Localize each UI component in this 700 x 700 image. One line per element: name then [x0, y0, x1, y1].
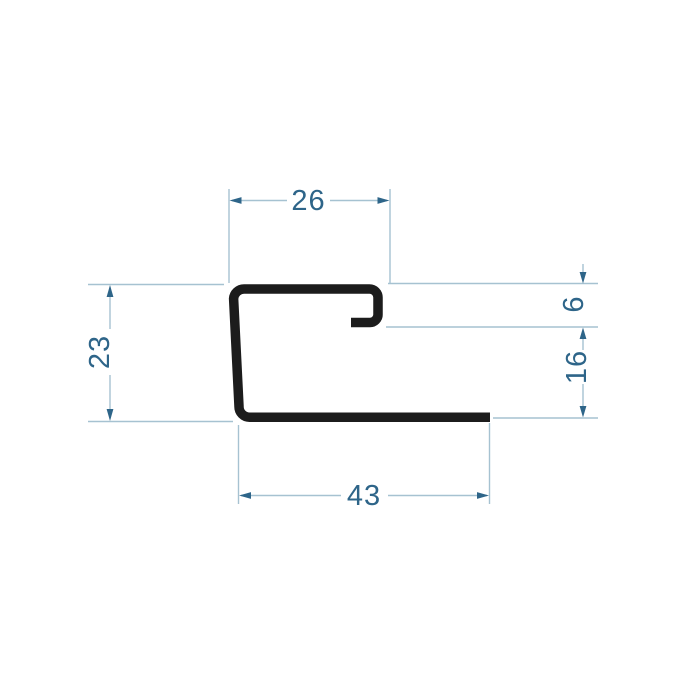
dim-right-lower-label: 16 [561, 350, 593, 384]
arrow-left-icon [230, 197, 242, 204]
dim-right-upper: 6 [386, 264, 598, 327]
arrow-right-icon [378, 197, 390, 204]
dim-bottom-width-label: 43 [347, 480, 381, 512]
arrow-down-icon [580, 272, 587, 284]
profile-cross-section-path [234, 289, 490, 417]
dim-left-height-label: 23 [84, 335, 116, 369]
dim-right-upper-label: 6 [558, 295, 590, 312]
arrow-right-icon [477, 492, 489, 499]
profile-drawing-svg: 26 23 6 16 [0, 0, 700, 700]
dim-right-lower: 16 [493, 328, 598, 419]
dim-bottom-width: 43 [239, 423, 490, 512]
arrow-down-icon [107, 409, 114, 421]
arrow-left-icon [239, 492, 251, 499]
profile-outline [234, 289, 490, 417]
arrow-up-icon [107, 285, 114, 297]
dim-left-height: 23 [84, 285, 233, 422]
arrow-up-icon [580, 328, 587, 340]
technical-drawing-canvas: 26 23 6 16 [0, 0, 700, 700]
arrow-down-icon [580, 406, 587, 418]
dim-top-width: 26 [229, 185, 390, 284]
dim-top-width-label: 26 [291, 185, 325, 217]
